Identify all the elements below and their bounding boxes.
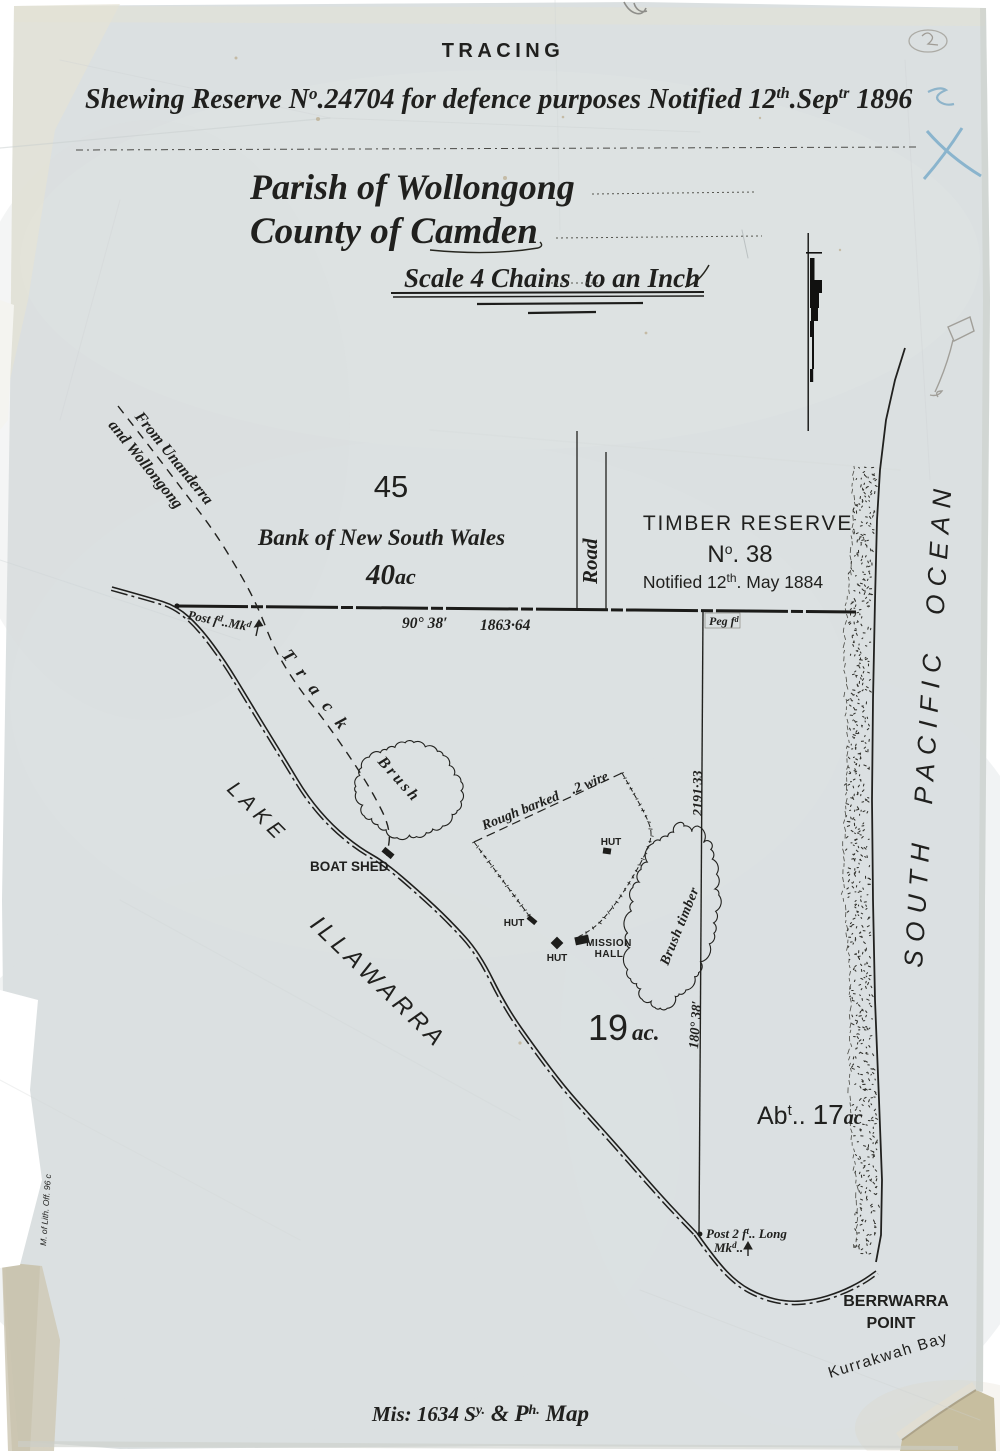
svg-text:HUT: HUT <box>504 918 525 929</box>
svg-text:HALL: HALL <box>595 949 624 960</box>
svg-text:BOAT SHED: BOAT SHED <box>310 859 389 874</box>
svg-text:HUT: HUT <box>601 837 622 848</box>
svg-text:Road: Road <box>578 538 602 585</box>
svg-text:Mkd..: Mkd.. <box>713 1240 743 1255</box>
svg-text:POINT: POINT <box>867 1315 916 1332</box>
svg-text:45: 45 <box>374 469 408 504</box>
svg-text:BERRWARRA: BERRWARRA <box>843 1293 949 1310</box>
svg-text:TRACING: TRACING <box>442 40 565 62</box>
svg-text:1863·64: 1863·64 <box>480 617 531 634</box>
svg-text:90° 38′: 90° 38′ <box>402 615 447 632</box>
svg-text:HUT: HUT <box>547 953 568 964</box>
svg-text:County of Camden: County of Camden <box>250 211 538 252</box>
svg-text:Parish of Wollongong: Parish of Wollongong <box>249 167 575 207</box>
svg-text:40ac: 40ac <box>365 559 416 591</box>
svg-text:No. 38: No. 38 <box>707 541 772 568</box>
svg-text:2191·33: 2191·33 <box>691 771 706 818</box>
svg-text:TIMBER RESERVE: TIMBER RESERVE <box>643 512 853 535</box>
svg-text:Scale 4 Chainsto an Inch: Scale 4 Chainsto an Inch <box>404 263 700 293</box>
svg-text:Bank of New South Wales: Bank of New South Wales <box>257 525 505 550</box>
